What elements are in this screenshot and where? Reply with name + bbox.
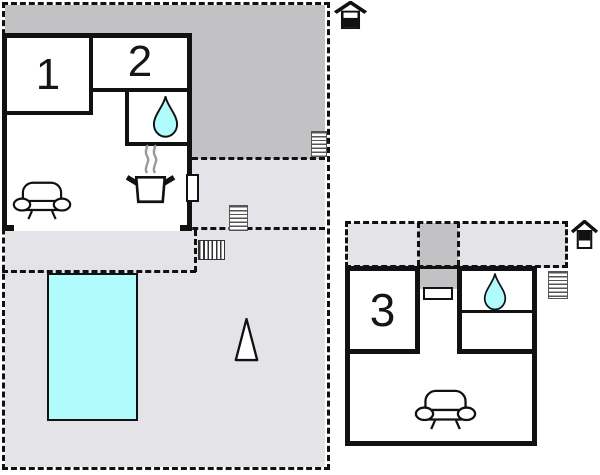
room-3-label: 3 [350,271,415,349]
stairwell-dashed-left [417,222,420,266]
water-drop-icon [152,95,179,138]
wall-room3-right [415,269,420,354]
wall-foot-left [2,225,14,231]
floor-level-ground-icon [334,1,367,30]
steam-icon [141,144,161,174]
room-1-number: 1 [36,50,60,100]
stairwell-dashed-right [457,222,460,266]
stairwell-interior [420,269,457,289]
room-2-number: 2 [128,37,152,87]
sofa-icon-2 [413,388,478,430]
door [186,174,199,202]
stairs-icon-upper [548,271,568,299]
room-1-label: 1 [7,38,89,111]
water-drop-icon-2 [483,271,507,312]
floor-level-upper-icon [571,220,598,250]
wall-room2-bottom [89,88,187,92]
wall-room3-bottom [348,349,420,354]
entrance-door [423,287,453,300]
swimming-pool [47,273,138,421]
wall-foot-right [180,225,192,231]
stairs-icon-roof-terrace [311,131,327,157]
wall-bathroom-left [125,90,129,146]
room-3-number: 3 [370,283,396,337]
floorplan-canvas: 1 2 [0,0,600,475]
room-2-label: 2 [93,36,187,88]
wall-bathroom2-bottom [460,349,534,354]
terrace-divider-vertical [194,230,197,272]
tree-icon [234,316,259,364]
stairs-icon-terrace [229,205,248,231]
wall-room1-bottom [5,111,93,115]
sofa-icon [9,180,75,220]
stairs-icon-pool-terrace [198,240,225,260]
cooking-pot-icon [124,172,177,205]
terrace-divider-upper [192,157,325,160]
